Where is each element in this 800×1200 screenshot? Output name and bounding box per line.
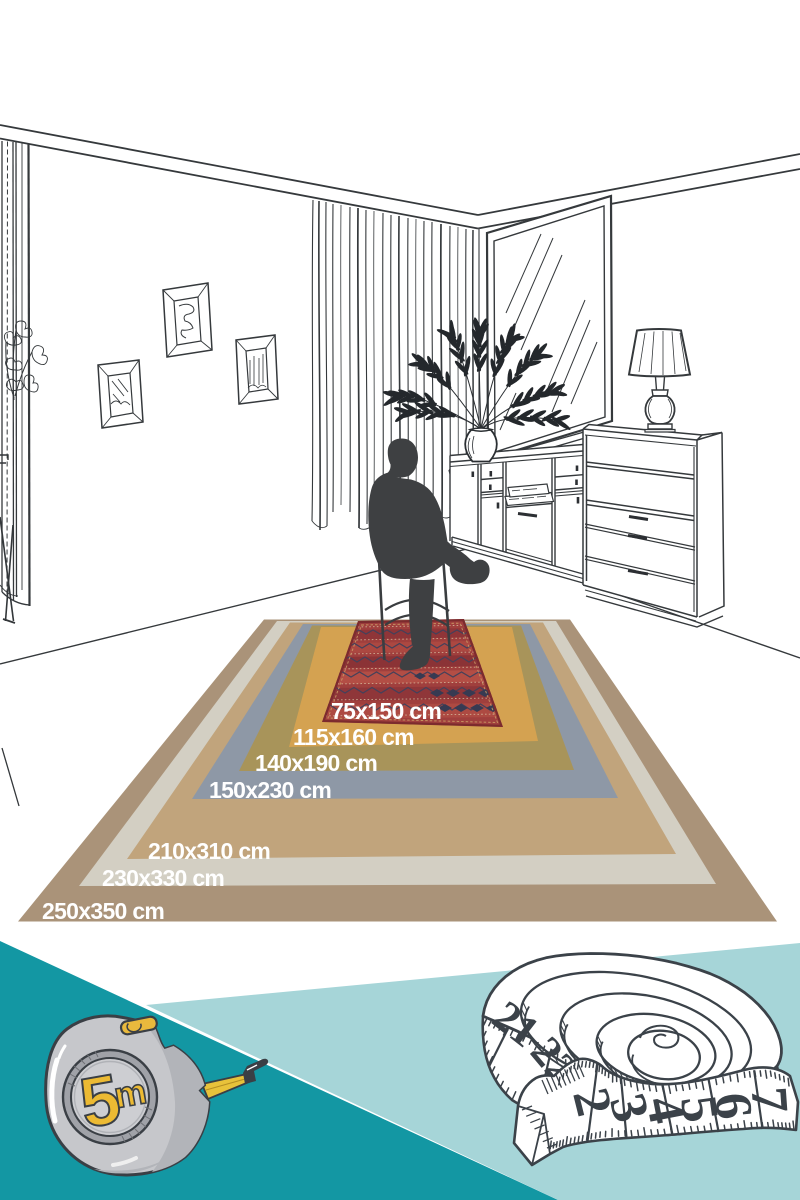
svg-text:210x310 cm: 210x310 cm: [148, 838, 270, 864]
svg-text:150x230 cm: 150x230 cm: [209, 777, 331, 803]
svg-text:7: 7: [740, 1085, 799, 1115]
svg-text:140x190 cm: 140x190 cm: [255, 750, 377, 776]
svg-text:115x160 cm: 115x160 cm: [293, 724, 414, 750]
svg-text:230x330 cm: 230x330 cm: [102, 865, 224, 891]
svg-text:250x350 cm: 250x350 cm: [42, 898, 164, 924]
svg-text:75x150 cm: 75x150 cm: [331, 698, 441, 724]
